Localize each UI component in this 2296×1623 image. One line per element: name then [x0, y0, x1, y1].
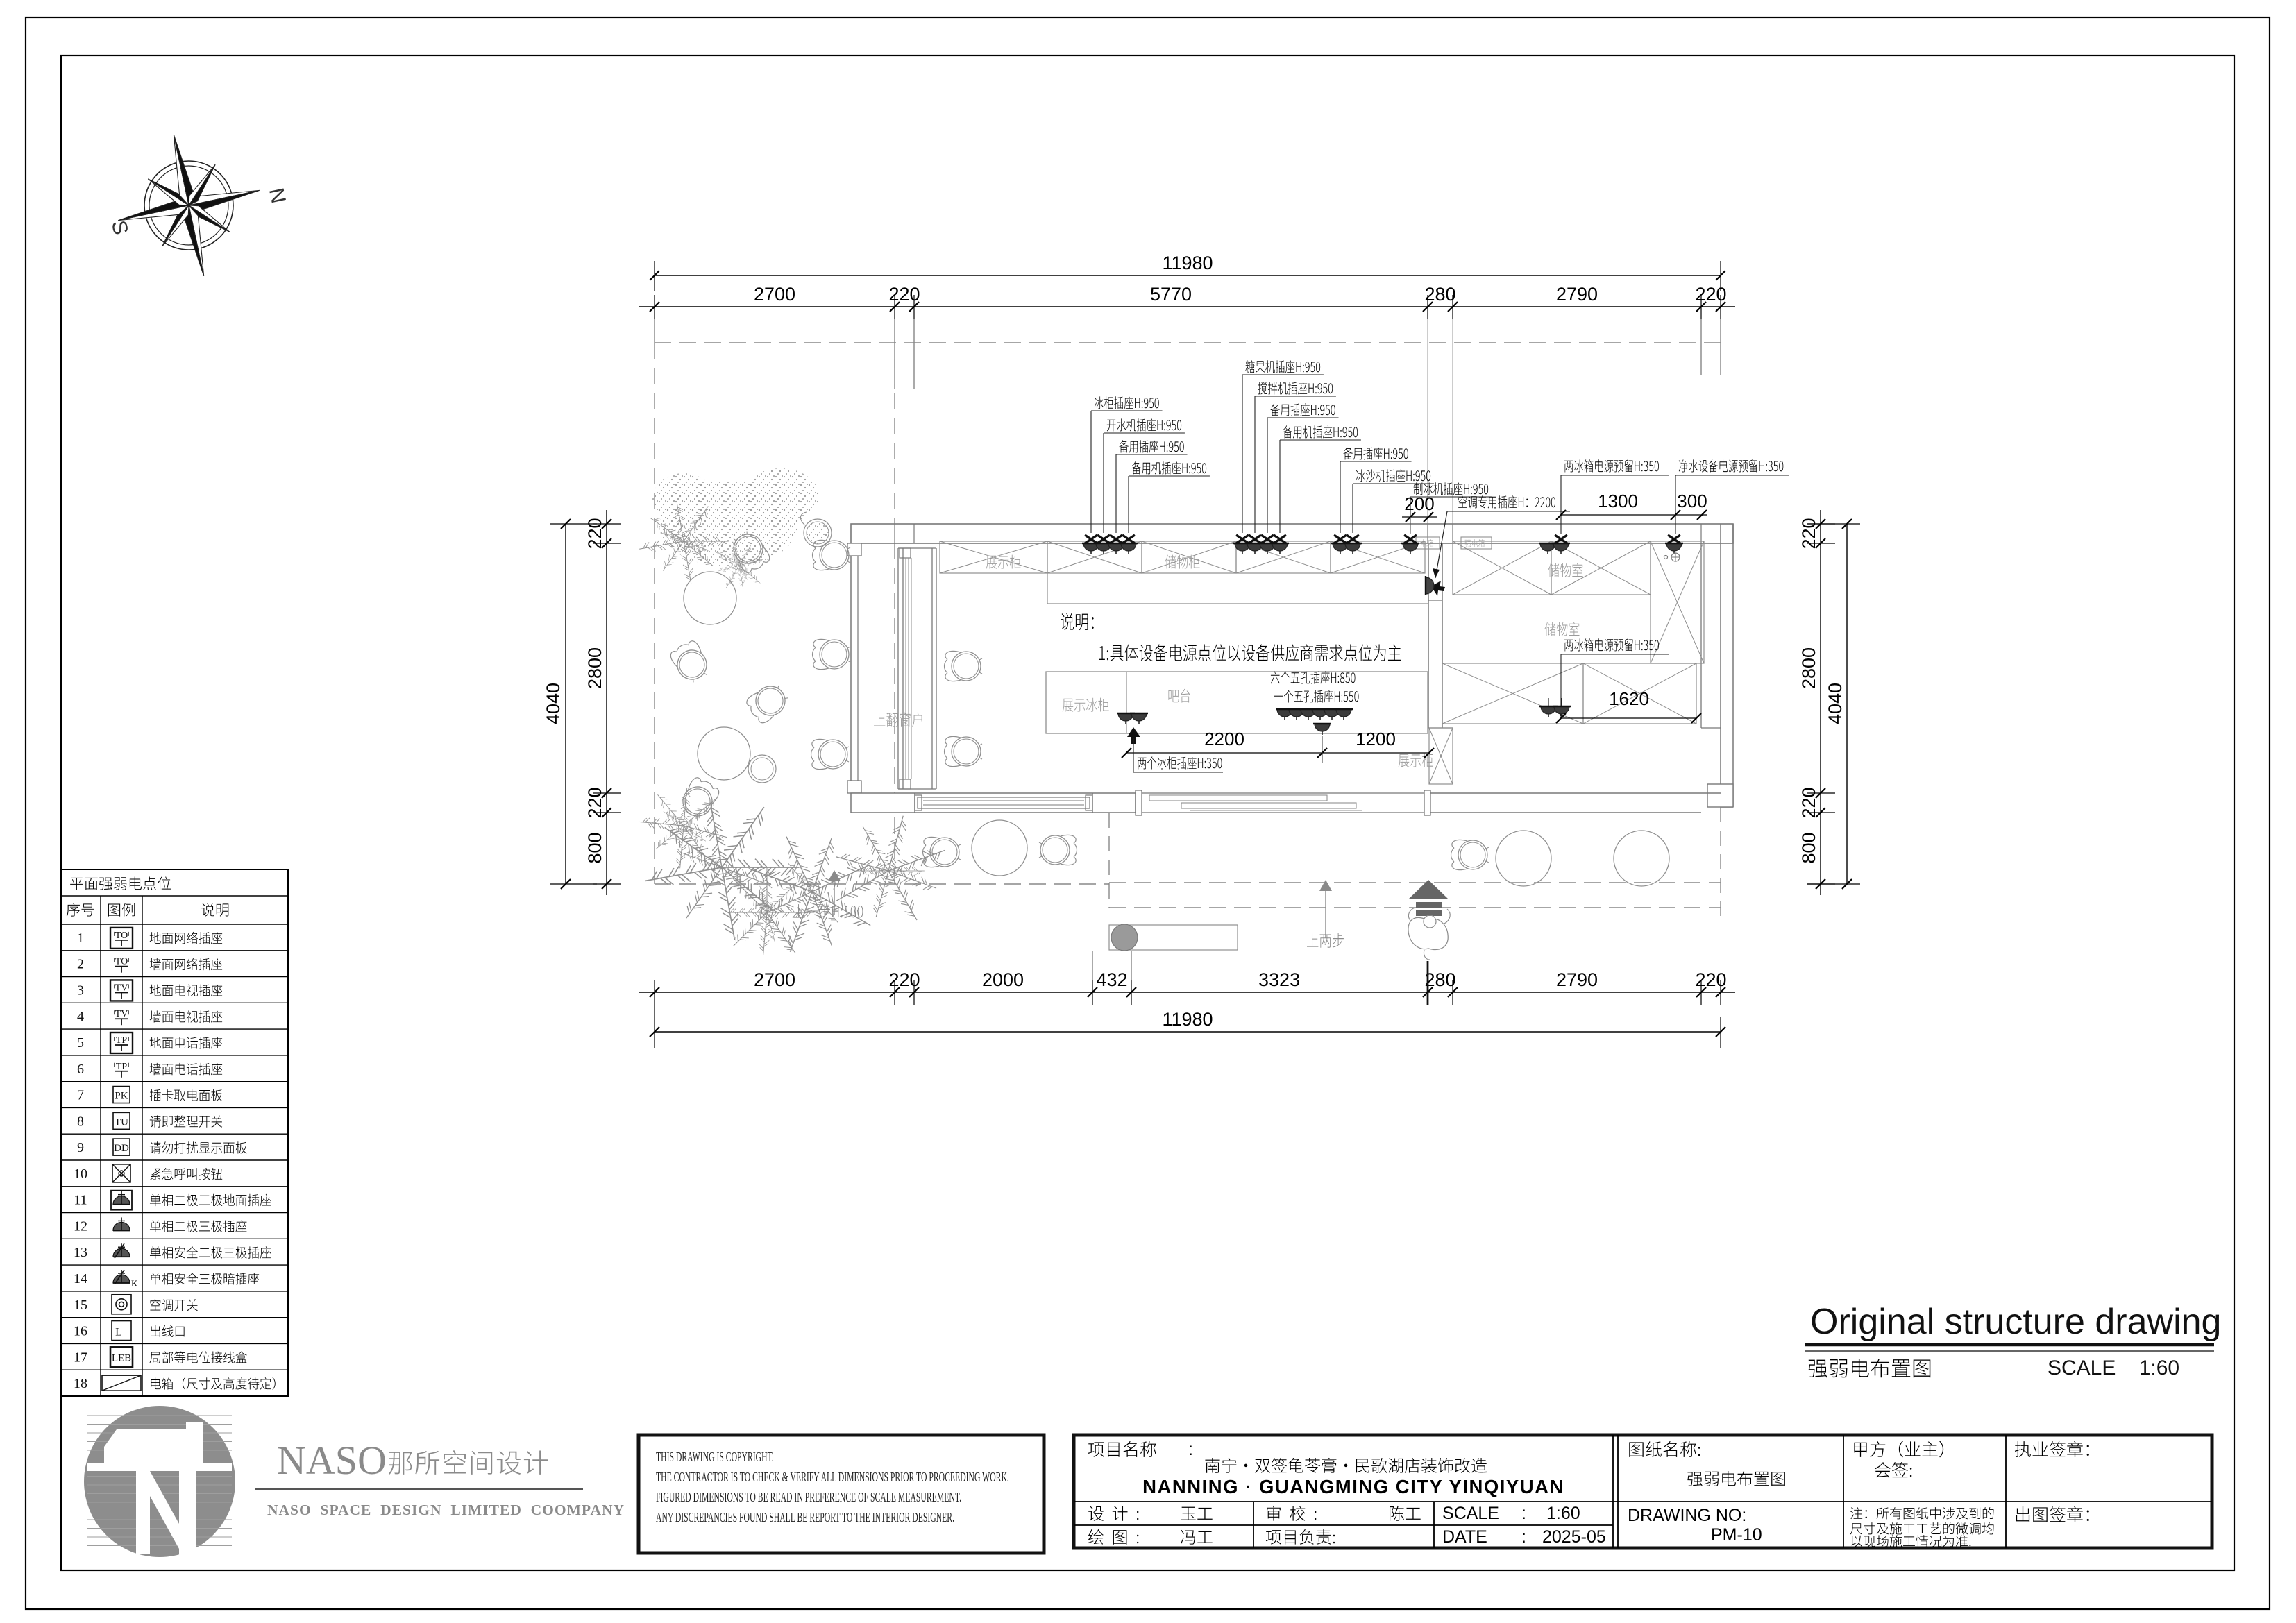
svg-text:220: 220: [1798, 787, 1819, 818]
svg-text:3: 3: [77, 983, 84, 998]
svg-text:THIS DRAWING IS COPYRIGHT.: THIS DRAWING IS COPYRIGHT.: [656, 1450, 774, 1465]
svg-text:NASO: NASO: [277, 1438, 387, 1483]
svg-text:1: 1: [77, 931, 84, 946]
svg-text:2790: 2790: [1556, 284, 1598, 305]
svg-text:2000: 2000: [982, 969, 1024, 990]
svg-text:220: 220: [584, 518, 605, 549]
svg-text:PM-10: PM-10: [1711, 1525, 1762, 1545]
svg-text:ANY DISCREPANCIES FOUND SHALL: ANY DISCREPANCIES FOUND SHALL BE REPORT …: [656, 1511, 954, 1525]
svg-text:15: 15: [74, 1298, 87, 1313]
svg-text:K: K: [131, 1278, 138, 1289]
svg-text:220: 220: [888, 284, 920, 305]
svg-text:14: 14: [74, 1271, 87, 1286]
svg-text:1200: 1200: [1356, 729, 1396, 749]
svg-text:220: 220: [888, 969, 920, 990]
svg-text:1:60: 1:60: [1546, 1504, 1580, 1523]
svg-text:432: 432: [1096, 969, 1127, 990]
svg-text:220: 220: [1695, 969, 1726, 990]
svg-text:5770: 5770: [1150, 284, 1192, 305]
svg-text:TU: TU: [115, 1116, 128, 1128]
svg-text:280: 280: [1424, 969, 1455, 990]
svg-text:800: 800: [1798, 832, 1819, 863]
svg-text:17: 17: [74, 1350, 87, 1365]
svg-text:220: 220: [1798, 518, 1819, 549]
svg-text:200: 200: [1404, 493, 1434, 514]
svg-text:TV: TV: [115, 983, 128, 993]
svg-text:16: 16: [74, 1324, 87, 1339]
svg-text:10: 10: [74, 1166, 87, 1182]
svg-text:NASO SPACE DESIGN LIMITED: NASO SPACE DESIGN LIMITED COOMPANY: [267, 1502, 625, 1518]
svg-text:6: 6: [77, 1062, 84, 1077]
svg-text:4040: 4040: [1825, 683, 1846, 724]
svg-text:11: 11: [74, 1193, 87, 1208]
svg-text:2800: 2800: [584, 647, 605, 689]
svg-text:NANNING · GUANGMING CITY YINQI: NANNING · GUANGMING CITY YINQIYUAN: [1142, 1476, 1564, 1497]
svg-text:DRAWING NO:: DRAWING NO:: [1628, 1506, 1746, 1525]
svg-text:280: 280: [1424, 284, 1455, 305]
svg-text:2790: 2790: [1556, 969, 1598, 990]
svg-text:TO: TO: [115, 957, 128, 967]
svg-text:2: 2: [77, 957, 84, 972]
svg-text:4040: 4040: [543, 683, 564, 724]
svg-text:2700: 2700: [754, 969, 795, 990]
svg-text:SCALE: SCALE: [1442, 1504, 1499, 1523]
svg-text:1620: 1620: [1609, 688, 1649, 709]
svg-text:DD: DD: [114, 1143, 129, 1154]
svg-text:300: 300: [1677, 491, 1707, 511]
svg-text:18: 18: [74, 1376, 87, 1391]
svg-text:4: 4: [77, 1009, 84, 1024]
svg-text:DATE: DATE: [1442, 1527, 1487, 1547]
svg-text:2025-05: 2025-05: [1542, 1527, 1606, 1547]
svg-text:THE CONTRACTOR IS TO CHECK & V: THE CONTRACTOR IS TO CHECK & VERIFY ALL …: [656, 1470, 1009, 1485]
svg-text:L: L: [115, 1327, 122, 1339]
svg-text:TP: TP: [116, 1035, 128, 1046]
svg-text:11980: 11980: [1162, 1009, 1213, 1030]
svg-text:3323: 3323: [1258, 969, 1300, 990]
svg-text:13: 13: [74, 1245, 87, 1260]
svg-text:LEB: LEB: [112, 1352, 131, 1363]
svg-text:9: 9: [77, 1140, 84, 1155]
svg-text::: :: [1521, 1504, 1526, 1523]
svg-text:1300: 1300: [1598, 491, 1638, 511]
svg-text:8: 8: [77, 1114, 84, 1129]
svg-text:PK: PK: [115, 1091, 128, 1102]
svg-text:220: 220: [584, 787, 605, 818]
svg-text:220: 220: [1695, 284, 1726, 305]
svg-text:TO: TO: [115, 931, 128, 941]
svg-text:2200: 2200: [1204, 729, 1244, 749]
svg-text:2700: 2700: [754, 284, 795, 305]
svg-text::: :: [1188, 1440, 1193, 1459]
svg-text:SCALE 1:60: SCALE 1:60: [2048, 1357, 2179, 1379]
svg-text:TP: TP: [116, 1062, 128, 1072]
svg-text:FIGURED DIMENSIONS TO BE READ: FIGURED DIMENSIONS TO BE READ IN PREFERE…: [656, 1490, 961, 1505]
svg-text:2800: 2800: [1798, 647, 1819, 689]
svg-text:Original structure drawing: Original structure drawing: [1810, 1302, 2221, 1342]
svg-text:5: 5: [77, 1035, 84, 1051]
svg-text:TV: TV: [115, 1009, 128, 1019]
svg-text::: :: [1521, 1527, 1526, 1547]
svg-text:11980: 11980: [1162, 253, 1213, 273]
svg-text:800: 800: [584, 832, 605, 863]
svg-text:12: 12: [74, 1218, 87, 1234]
svg-text:7: 7: [77, 1088, 84, 1103]
